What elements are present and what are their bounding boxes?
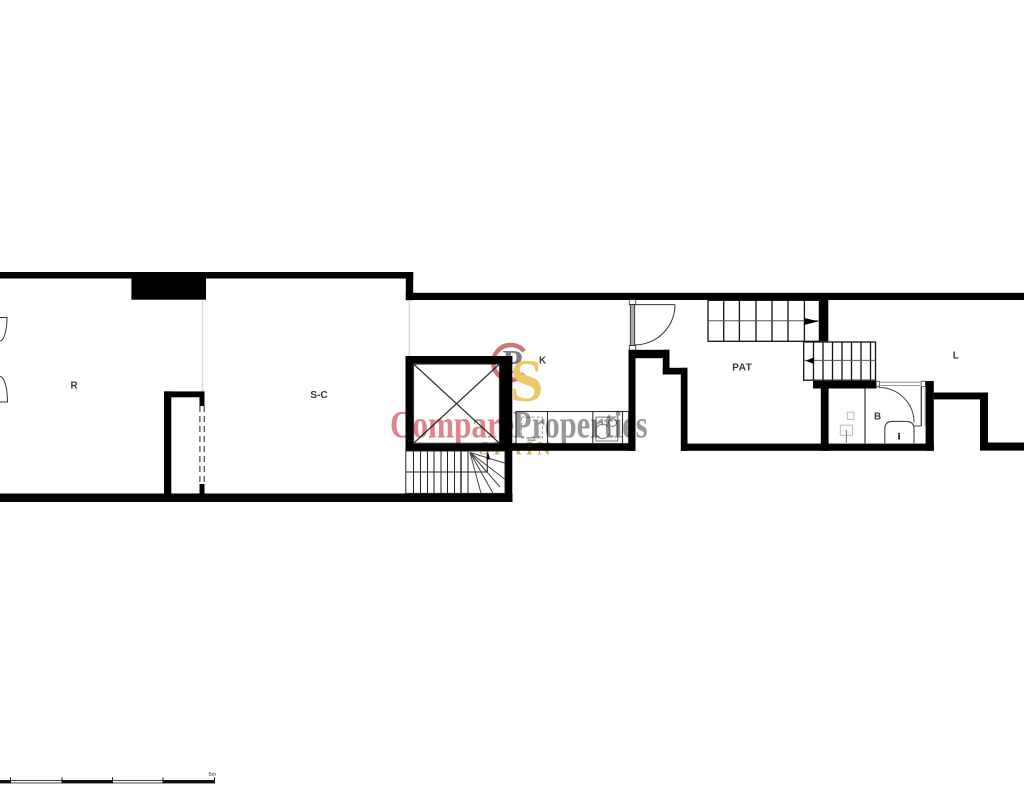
svg-text:PAT: PAT [732, 362, 752, 373]
svg-text:S-C: S-C [310, 390, 328, 401]
svg-text:5m: 5m [209, 772, 217, 778]
svg-text:L: L [953, 351, 959, 362]
svg-text:SPAIN: SPAIN [479, 439, 555, 460]
svg-text:R: R [70, 380, 77, 391]
svg-text:B: B [874, 411, 881, 422]
